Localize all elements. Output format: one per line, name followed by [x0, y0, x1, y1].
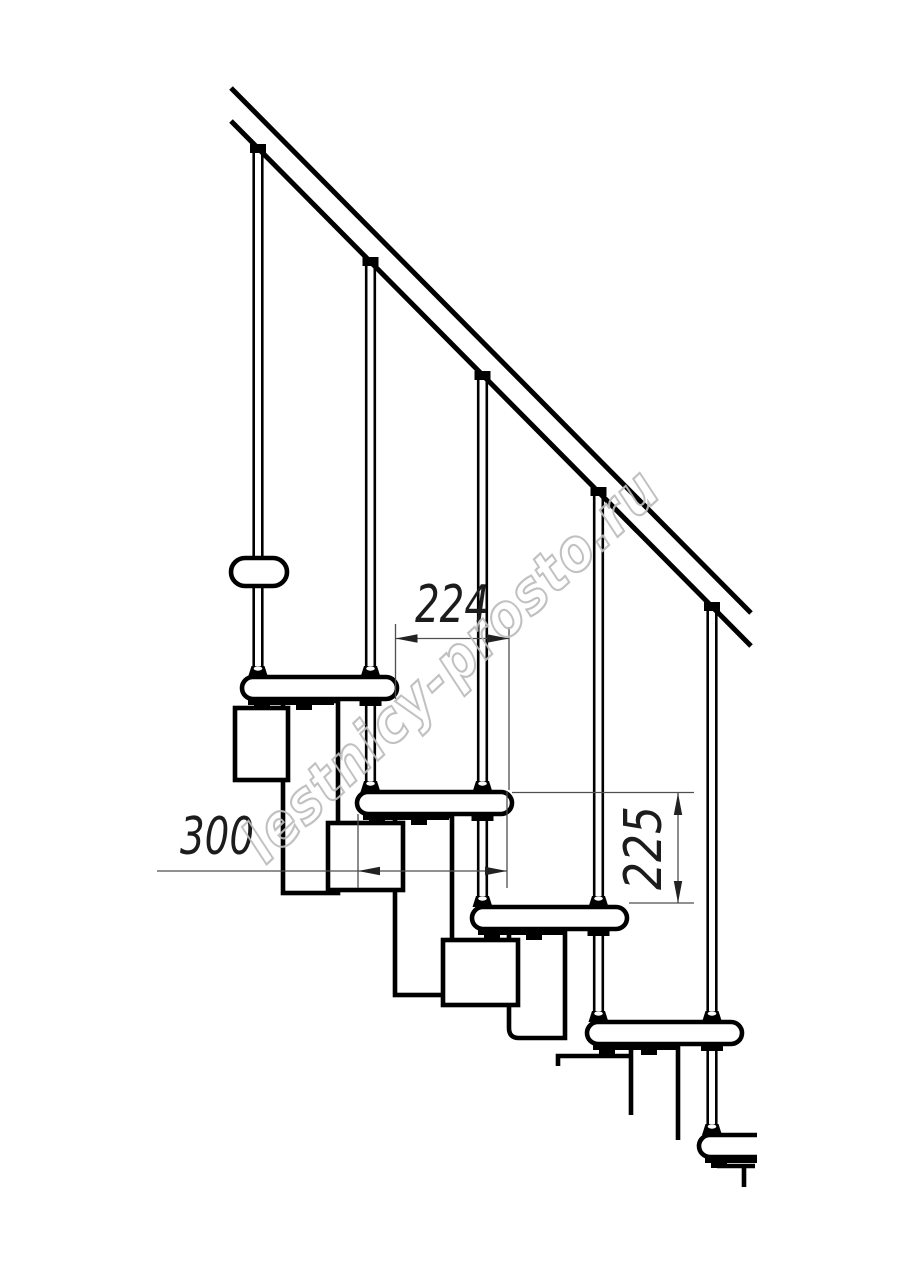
handrail	[231, 88, 751, 646]
arrowhead-down	[674, 881, 682, 903]
stringer-block	[235, 708, 288, 780]
arrowhead-left	[396, 634, 418, 642]
dimension-value-rise: 225	[614, 806, 674, 890]
baluster-top-cap	[475, 371, 491, 380]
tread	[357, 792, 512, 814]
staircase-drawing: 224 300 225 lestnicy-prosto.ru	[0, 0, 914, 1280]
baluster-top-cap	[363, 257, 379, 266]
post-collar	[588, 927, 610, 936]
stringer-block	[328, 823, 403, 890]
handrail-end-bracket	[231, 558, 287, 586]
handrail-top-line	[231, 88, 751, 613]
stringer-block-partial	[558, 1056, 631, 1066]
technical-drawing-canvas: 224 300 225 lestnicy-prosto.ru	[0, 0, 914, 1280]
baluster	[250, 144, 266, 667]
post-collar	[472, 812, 494, 821]
tread	[472, 907, 627, 929]
handrail-bottom-line	[231, 121, 751, 646]
tread	[587, 1022, 742, 1044]
arrowhead-up	[674, 793, 682, 815]
post-collar	[701, 1042, 723, 1051]
tread-partial	[699, 1135, 757, 1157]
stringer-block	[443, 940, 518, 1005]
arrowhead-right	[485, 867, 507, 875]
